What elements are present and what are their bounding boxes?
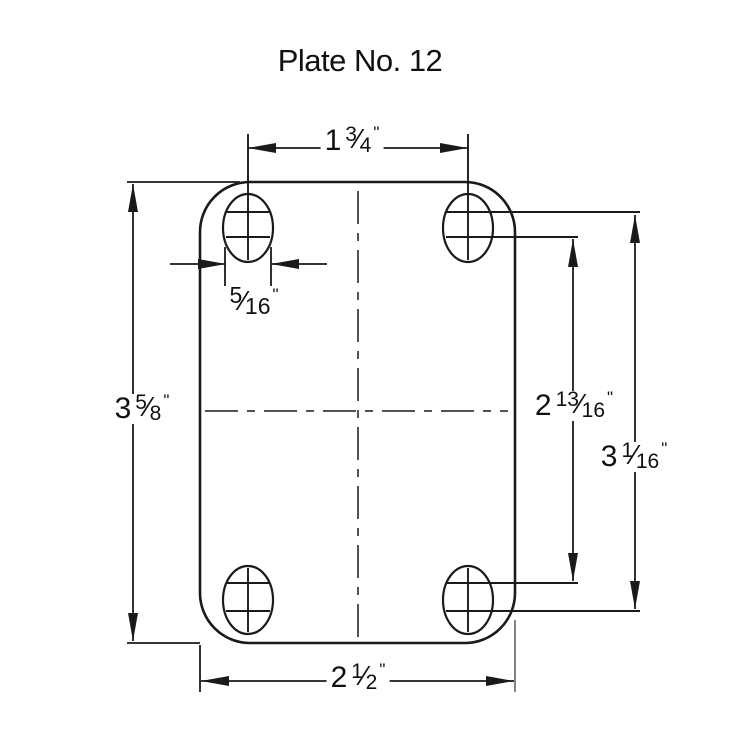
arrowhead-bottom-left xyxy=(201,676,229,686)
dimension-label-left-height: 35⁄8" xyxy=(111,394,174,424)
dim-inch-mark: " xyxy=(607,389,613,406)
dim-denominator: 4 xyxy=(360,135,372,156)
drawing-title: Plate No. 12 xyxy=(278,43,443,79)
dim-whole: 2 xyxy=(535,391,552,421)
dim-denominator: 16 xyxy=(245,295,271,318)
arrowhead-right-outer-top xyxy=(630,215,640,243)
dim-denominator: 8 xyxy=(150,403,162,424)
dim-inch-mark: " xyxy=(661,440,667,457)
arrowhead-slot-right xyxy=(271,259,299,269)
dimension-label-top-width: 13⁄4" xyxy=(321,126,384,156)
arrowhead-top-left xyxy=(248,143,276,153)
arrowhead-top-right xyxy=(440,143,468,153)
dim-inch-mark: " xyxy=(373,124,379,141)
dimension-label-slot-width: 5⁄16" xyxy=(225,289,282,317)
dim-whole: 3 xyxy=(601,442,618,472)
arrowhead-bottom-right xyxy=(486,676,514,686)
arrowhead-right-outer-bottom xyxy=(630,581,640,609)
dim-denominator: 16 xyxy=(636,451,659,472)
arrowhead-slot-left xyxy=(198,259,226,269)
dim-whole: 1 xyxy=(325,126,342,156)
dim-inch-mark: " xyxy=(163,392,169,409)
plate-drawing-canvas: Plate No. 12 13⁄4" 35⁄8" 5⁄16" 213⁄16" 3… xyxy=(0,0,750,750)
arrowhead-right-inner-bottom xyxy=(568,553,578,581)
arrowhead-left-bottom xyxy=(128,613,138,641)
dim-inch-mark: " xyxy=(273,286,279,303)
dim-inch-mark: " xyxy=(379,661,385,678)
arrowhead-left-top xyxy=(128,184,138,212)
dimension-label-bottom-width: 21⁄2" xyxy=(327,663,390,693)
dimension-label-right-outer: 31⁄16" xyxy=(597,442,671,472)
arrowhead-right-inner-top xyxy=(568,239,578,267)
plate-drawing xyxy=(0,0,750,750)
dim-whole: 3 xyxy=(115,394,132,424)
dimension-label-right-inner: 213⁄16" xyxy=(531,391,617,421)
dim-numerator: 13 xyxy=(556,389,579,410)
dim-denominator: 2 xyxy=(366,672,378,693)
dim-denominator: 16 xyxy=(582,400,605,421)
dim-whole: 2 xyxy=(331,663,348,693)
